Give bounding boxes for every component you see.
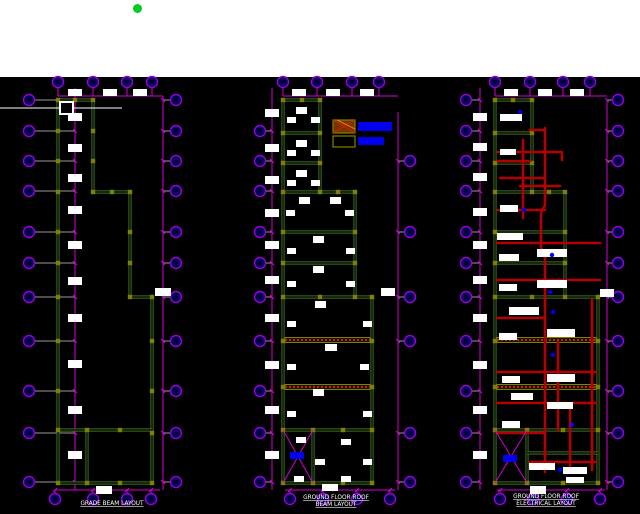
svg-text:ELECTRICAL LAYOUT: ELECTRICAL LAYOUT xyxy=(516,501,576,507)
pickbox xyxy=(60,102,73,114)
conduit-lines xyxy=(497,128,600,472)
cad-drawing-viewport[interactable]: GRADE BEAM LAYOUTGROUND FLOOR ROOFBEAM L… xyxy=(0,0,640,514)
svg-text:BEAM LAYOUT: BEAM LAYOUT xyxy=(316,502,357,508)
building-walls xyxy=(58,100,152,483)
plan-grade-beam-layout: GRADE BEAM LAYOUT xyxy=(24,77,182,508)
svg-text:GROUND FLOOR ROOF: GROUND FLOOR ROOF xyxy=(303,495,369,501)
plan-ground-floor-roof-electrical-layout: GROUND FLOOR ROOFELECTRICAL LAYOUT xyxy=(461,77,624,508)
crosshair-cursor xyxy=(0,102,122,114)
building-walls xyxy=(283,100,372,483)
stair-cross xyxy=(495,430,527,483)
dimension-boxes xyxy=(68,89,171,494)
column-markers xyxy=(56,98,154,485)
cad-canvas: GRADE BEAM LAYOUTGROUND FLOOR ROOFBEAM L… xyxy=(0,0,640,514)
legend xyxy=(333,120,392,147)
svg-text:GRADE BEAM LAYOUT: GRADE BEAM LAYOUT xyxy=(80,501,144,507)
plan-title: GROUND FLOOR ROOFELECTRICAL LAYOUT xyxy=(513,494,579,507)
plan-ground-floor-roof-beam-layout: GROUND FLOOR ROOFBEAM LAYOUT xyxy=(255,77,416,509)
svg-text:GROUND FLOOR ROOF: GROUND FLOOR ROOF xyxy=(513,494,579,500)
plan-title: GRADE BEAM LAYOUT xyxy=(80,501,144,507)
